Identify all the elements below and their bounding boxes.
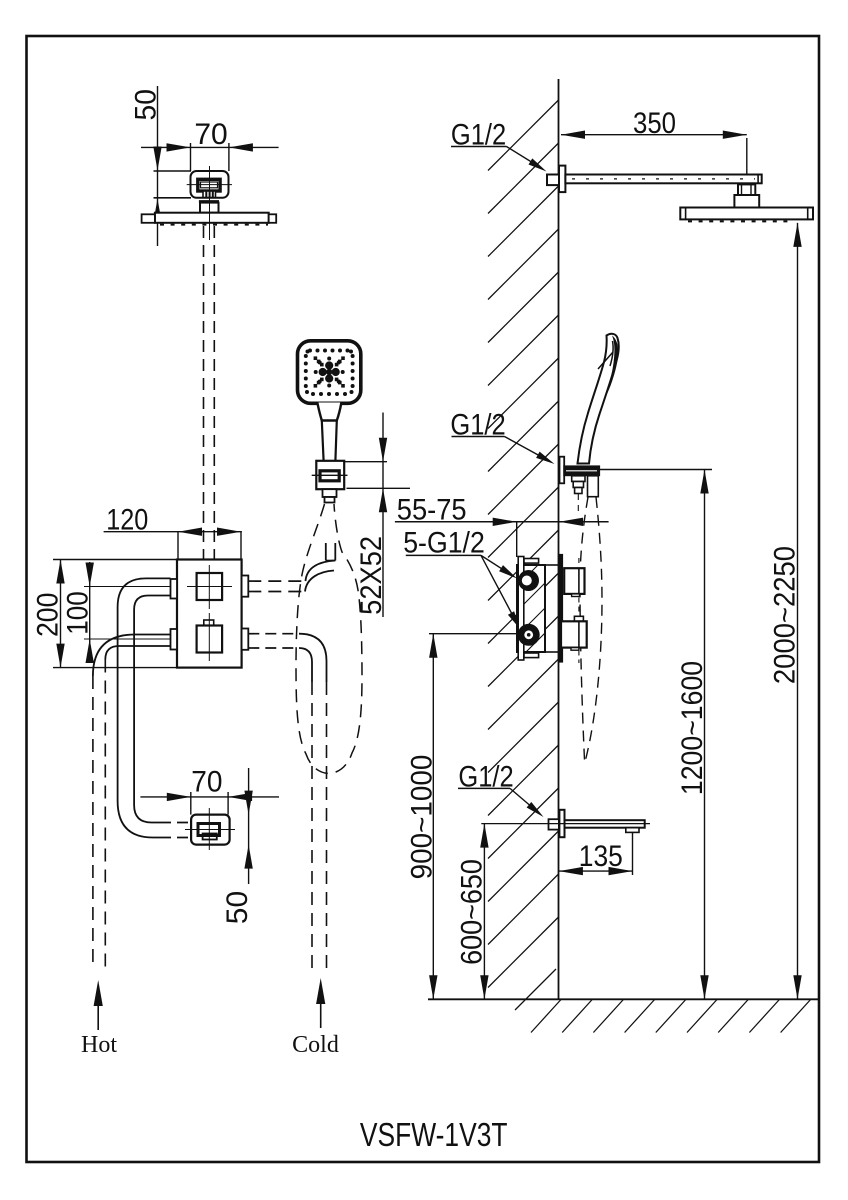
svg-text:2000~2250: 2000~2250 [768,546,801,684]
svg-text:VSFW-1V3T: VSFW-1V3T [360,1117,508,1153]
svg-text:120: 120 [106,502,148,536]
svg-text:900~1000: 900~1000 [406,755,439,880]
svg-text:135: 135 [579,838,623,872]
svg-text:Cold: Cold [292,1032,339,1058]
svg-text:Hot: Hot [81,1032,117,1058]
svg-text:100: 100 [61,591,94,635]
svg-text:1200~1600: 1200~1600 [676,661,710,795]
svg-text:70: 70 [194,118,227,151]
svg-text:600~650: 600~650 [455,859,489,965]
svg-text:50: 50 [221,891,254,924]
svg-text:70: 70 [191,766,222,799]
